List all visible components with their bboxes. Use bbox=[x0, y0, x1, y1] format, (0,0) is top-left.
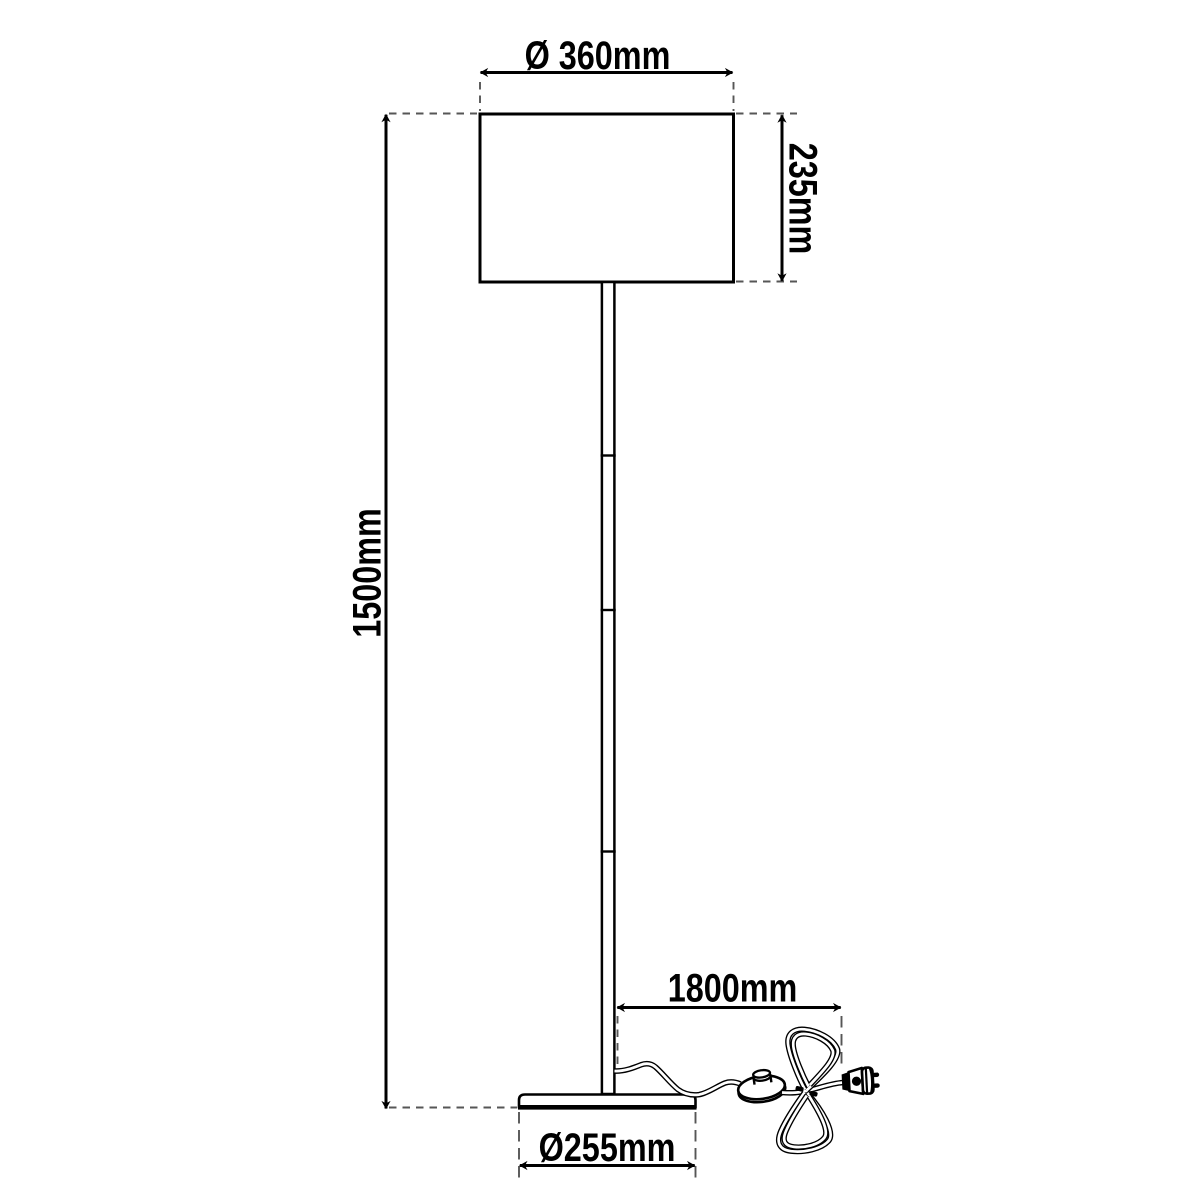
svg-text:235mm: 235mm bbox=[781, 143, 826, 255]
svg-text:1800mm: 1800mm bbox=[668, 965, 798, 1010]
svg-text:1500mm: 1500mm bbox=[344, 508, 389, 638]
svg-text:Ø255mm: Ø255mm bbox=[539, 1125, 676, 1170]
